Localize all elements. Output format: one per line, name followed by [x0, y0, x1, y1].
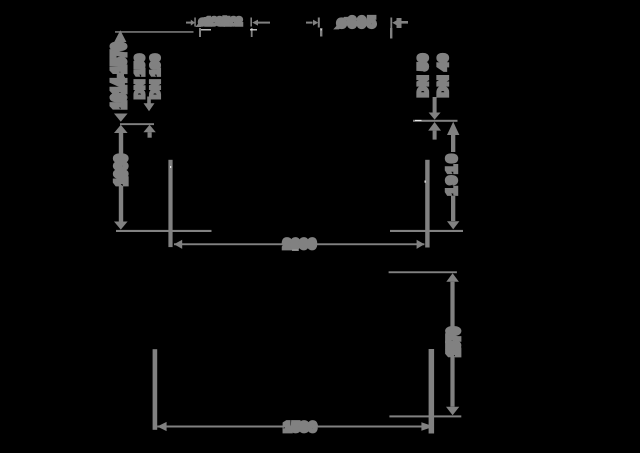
- svg-text:ø160/162: ø160/162: [199, 16, 242, 28]
- svg-text:DN 50: DN 50: [415, 53, 431, 97]
- svg-text:1060: 1060: [112, 154, 130, 185]
- svg-text:1910: 1910: [445, 152, 461, 195]
- svg-text:ø605: ø605: [337, 15, 377, 32]
- svg-text:1536: 1536: [284, 419, 318, 435]
- svg-text:DN 40: DN 40: [435, 53, 451, 97]
- svg-text:DN 150: DN 150: [132, 54, 147, 99]
- svg-text:1014-1570: 1014-1570: [110, 42, 130, 109]
- svg-text:2000: 2000: [283, 235, 317, 251]
- svg-text:1570: 1570: [446, 327, 464, 356]
- svg-text:DN 100: DN 100: [148, 54, 163, 99]
